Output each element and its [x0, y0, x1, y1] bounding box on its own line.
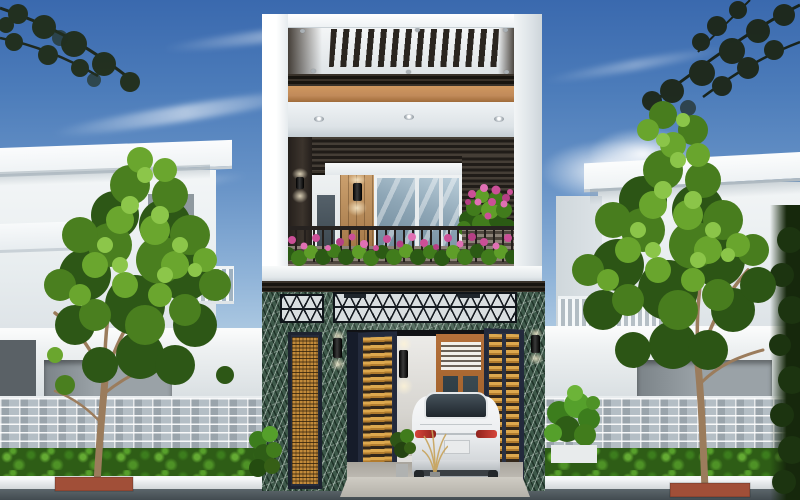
car-rear-window — [424, 392, 488, 419]
panel-lamp-glow — [347, 200, 367, 216]
bolt — [415, 28, 420, 32]
lattice-grille-small — [280, 294, 324, 323]
wall-lamp — [353, 183, 362, 201]
street-tree-left — [25, 125, 260, 500]
ceiling-downlight — [314, 116, 324, 122]
door-transom-louver — [441, 342, 481, 370]
marble-wall-sconce — [333, 338, 342, 358]
bolt — [503, 28, 508, 32]
roof-frame-left — [262, 14, 288, 268]
pedestrian-gate-mesh — [292, 337, 318, 484]
ceiling-downlight — [494, 116, 504, 122]
driveway-ramp — [340, 477, 530, 497]
roof-frame-top — [262, 14, 542, 28]
column-lamp-glow — [292, 189, 308, 203]
sconce-glow — [330, 357, 346, 371]
bolt — [311, 69, 316, 73]
marble-wall-sconce — [531, 335, 540, 353]
copper-fascia — [288, 86, 514, 103]
branch-silhouette-left — [0, 0, 160, 115]
sconce-glow — [528, 352, 544, 365]
tail-light — [476, 430, 497, 438]
roof-frame-right — [514, 14, 542, 268]
potted-plant — [388, 426, 416, 482]
pergola-slats — [329, 29, 499, 67]
interior-sconce-glow — [395, 377, 413, 395]
balcony-slab — [262, 266, 542, 282]
architectural-render — [0, 0, 800, 500]
car-trunk-line — [420, 424, 492, 425]
ceiling-downlight — [404, 114, 414, 120]
bolt — [300, 29, 305, 33]
grille-vent-tab — [344, 294, 366, 298]
balcony-flowers — [282, 228, 518, 268]
ornamental-grass — [422, 428, 448, 480]
ground-soffit — [262, 281, 545, 292]
wall-lamp — [296, 177, 304, 189]
street-tree-right — [548, 95, 798, 500]
grille-vent-tab — [458, 294, 480, 298]
interior-wall-sconce — [399, 350, 408, 378]
